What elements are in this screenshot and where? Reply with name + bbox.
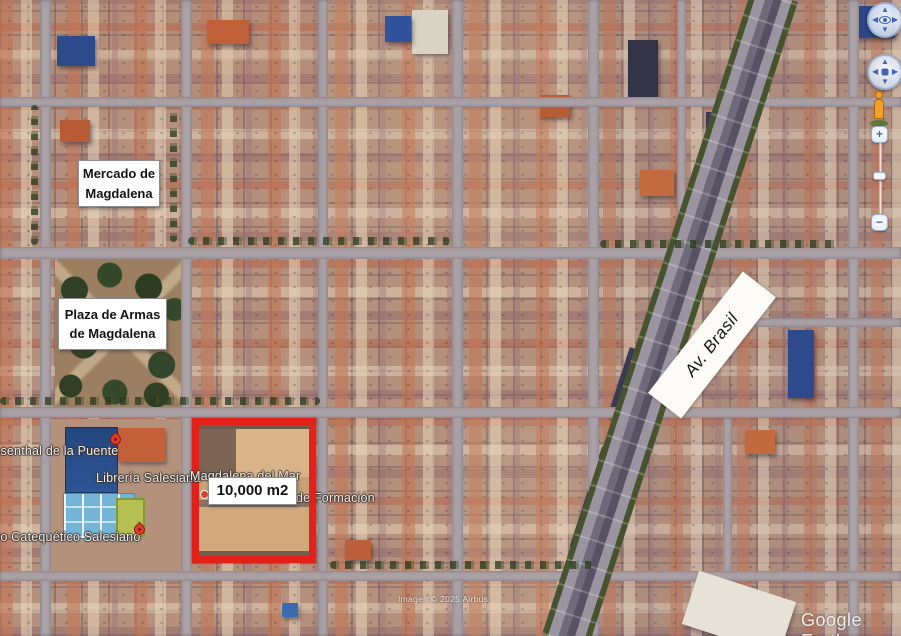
street (755, 318, 901, 327)
pegman-head (875, 91, 883, 99)
street (181, 0, 192, 636)
rooftop (282, 603, 298, 617)
rooftop (640, 170, 674, 196)
move-up-arrow-icon[interactable]: ▲ (881, 58, 889, 66)
pegman-body (874, 99, 884, 119)
tree-line (600, 240, 840, 248)
zoom-in-button[interactable]: + (871, 126, 888, 143)
rooftop (207, 20, 249, 44)
zoom-out-button[interactable]: − (871, 214, 888, 231)
look-joystick[interactable]: ▲ ▼ ◀ ▶ (867, 2, 901, 38)
place-label-libreria-salesiana: Librería Salesiana (96, 471, 200, 485)
tree-line (0, 397, 320, 405)
rooftop (118, 428, 165, 462)
label-plaza-de-armas: Plaza de Armas de Magdalena (58, 298, 167, 350)
look-left-arrow-icon[interactable]: ◀ (872, 16, 878, 24)
rooftop (57, 36, 95, 66)
street (318, 0, 328, 636)
rooftop (788, 330, 814, 398)
google-earth-watermark: Google Earth (801, 610, 901, 636)
move-joystick[interactable]: ▲ ▼ ◀ ▶ (867, 54, 901, 90)
zoom-slider-handle[interactable] (873, 172, 886, 180)
label-line: Plaza de Armas (59, 305, 166, 325)
lot-area-value: 10,000 m2 (209, 480, 296, 503)
label-line: de Magdalena (59, 324, 166, 344)
label-mercado-de-magdalena: Mercado de Magdalena (78, 160, 160, 207)
street (0, 571, 901, 581)
street (0, 407, 901, 418)
label-line: Magdalena (79, 184, 159, 204)
eye-icon (879, 16, 891, 24)
move-center-icon (882, 69, 889, 76)
tree-line (188, 237, 450, 245)
rooftop (345, 540, 371, 560)
move-right-arrow-icon[interactable]: ▶ (892, 68, 898, 76)
tree-line (330, 561, 592, 569)
label-lot-area: 10,000 m2 (208, 477, 297, 505)
rooftop (60, 120, 90, 142)
rooftop (412, 10, 448, 54)
street (0, 247, 901, 259)
google-earth-viewport: de Formación ssenthal de la Puente Libre… (0, 0, 901, 636)
move-down-arrow-icon[interactable]: ▼ (881, 78, 889, 86)
label-line: Mercado de (79, 164, 159, 184)
look-up-arrow-icon[interactable]: ▲ (881, 6, 889, 14)
move-left-arrow-icon[interactable]: ◀ (872, 68, 878, 76)
tree-line (31, 105, 38, 245)
look-down-arrow-icon[interactable]: ▼ (881, 26, 889, 34)
imagery-attribution: Imagen © 2025 Airbus (398, 594, 488, 604)
place-label-rosenthal: ssenthal de la Puente (0, 444, 118, 458)
building-tower (628, 40, 658, 98)
rooftop (385, 16, 411, 42)
rooftop (745, 430, 775, 454)
look-right-arrow-icon[interactable]: ▶ (892, 16, 898, 24)
street (452, 0, 463, 636)
place-label-catequetico: ro Catequético Salesiano (0, 530, 140, 544)
street-view-pegman[interactable] (870, 91, 888, 127)
tree-line (170, 107, 177, 242)
